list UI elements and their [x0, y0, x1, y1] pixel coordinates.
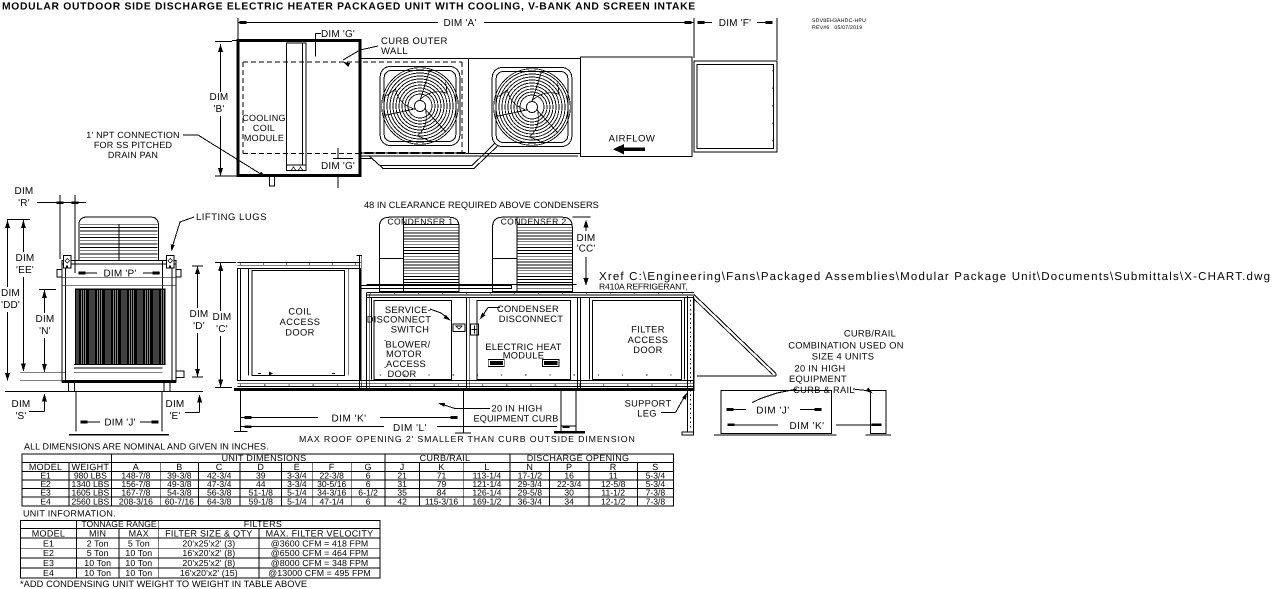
svg-text:2 Ton: 2 Ton: [87, 538, 109, 548]
svg-text:MODULE: MODULE: [503, 350, 545, 360]
svg-text:DIM 'L': DIM 'L': [393, 423, 427, 434]
svg-text:MODULE: MODULE: [244, 133, 284, 143]
svg-text:CONDENSER 2: CONDENSER 2: [501, 216, 567, 226]
svg-text:64-3/8: 64-3/8: [207, 496, 232, 506]
svg-text:EQUIPMENT: EQUIPMENT: [789, 374, 847, 384]
svg-text:CONDENSER 1: CONDENSER 1: [387, 216, 453, 226]
svg-text:MODULAR OUTDOOR SIDE DISCHARGE: MODULAR OUTDOOR SIDE DISCHARGE ELECTRIC …: [2, 2, 696, 13]
svg-text:DIM: DIM: [210, 92, 229, 103]
svg-text:MIN: MIN: [89, 529, 106, 539]
svg-text:BLOWER/: BLOWER/: [386, 339, 431, 349]
svg-text:DIM: DIM: [16, 253, 35, 264]
svg-text:REV#6 05/07/2019: REV#6 05/07/2019: [812, 25, 862, 31]
svg-text:5-1/4: 5-1/4: [287, 496, 307, 506]
svg-text:MAX ROOF OPENING 2' SMALLER TH: MAX ROOF OPENING 2' SMALLER THAN CURB OU…: [299, 434, 636, 444]
svg-text:R410A REFRIGERANT,: R410A REFRIGERANT,: [599, 282, 688, 292]
svg-text:DOOR: DOOR: [633, 345, 663, 355]
svg-text:DIM: DIM: [36, 314, 55, 325]
svg-text:ACCESS: ACCESS: [628, 335, 669, 345]
svg-text:DIM 'J': DIM 'J': [104, 418, 135, 429]
svg-text:DOOR: DOOR: [285, 328, 315, 338]
svg-text:20 IN HIGH: 20 IN HIGH: [794, 363, 845, 373]
svg-text:DIM: DIM: [15, 186, 34, 197]
svg-text:'CC': 'CC': [576, 244, 595, 255]
svg-text:DIM 'G': DIM 'G': [321, 161, 355, 172]
svg-text:10 Ton: 10 Ton: [84, 558, 111, 568]
svg-text:DIM 'P': DIM 'P': [104, 269, 137, 280]
svg-text:UNIT INFORMATION.: UNIT INFORMATION.: [23, 508, 116, 518]
svg-text:CURB/RAIL: CURB/RAIL: [420, 453, 471, 463]
svg-text:DIM: DIM: [190, 309, 209, 320]
svg-text:36-3/4: 36-3/4: [518, 496, 543, 506]
svg-text:DIM: DIM: [213, 312, 232, 323]
svg-text:10 Ton: 10 Ton: [125, 548, 152, 558]
svg-text:20 IN HIGH: 20 IN HIGH: [491, 404, 542, 414]
svg-text:@8000 CFM = 348 FPM: @8000 CFM = 348 FPM: [271, 558, 369, 568]
svg-text:42: 42: [397, 496, 407, 506]
svg-text:E4: E4: [43, 568, 54, 578]
svg-text:60-7/16: 60-7/16: [165, 496, 194, 506]
svg-text:CURB & RAIL: CURB & RAIL: [793, 385, 855, 395]
svg-text:20'x25'x2' (3): 20'x25'x2' (3): [182, 538, 235, 548]
svg-text:59-1/8: 59-1/8: [249, 496, 274, 506]
svg-text:10 Ton: 10 Ton: [125, 558, 152, 568]
svg-text:DIM: DIM: [577, 233, 596, 244]
svg-text:DRAIN PAN: DRAIN PAN: [108, 150, 158, 160]
svg-text:DOOR: DOOR: [387, 369, 416, 379]
svg-text:FILTER SIZE & QTY: FILTER SIZE & QTY: [165, 529, 252, 539]
svg-text:10 Ton: 10 Ton: [125, 568, 152, 578]
svg-text:115-3/16: 115-3/16: [425, 496, 459, 506]
svg-text:*ADD CONDENSING UNIT WEIGHT TO: *ADD CONDENSING UNIT WEIGHT TO WEIGHT IN…: [20, 579, 307, 589]
svg-text:5 Ton: 5 Ton: [87, 548, 109, 558]
svg-text:6: 6: [366, 496, 371, 506]
svg-text:COIL: COIL: [253, 123, 275, 133]
svg-text:16'x20'x2' (15): 16'x20'x2' (15): [180, 568, 238, 578]
svg-text:E4: E4: [40, 496, 51, 506]
svg-text:SWITCH: SWITCH: [391, 325, 429, 335]
svg-text:'C': 'C': [216, 324, 228, 335]
svg-text:COOLING: COOLING: [242, 113, 286, 123]
svg-text:@3600 CFM = 418 FPM: @3600 CFM = 418 FPM: [271, 538, 369, 548]
svg-text:'E': 'E': [169, 411, 180, 422]
svg-text:CONDENSER: CONDENSER: [497, 304, 559, 314]
svg-text:208-3/16: 208-3/16: [119, 496, 153, 506]
svg-text:LEG: LEG: [637, 409, 657, 419]
svg-text:DISCONNECT: DISCONNECT: [367, 315, 431, 325]
svg-text:COMBINATION USED ON: COMBINATION USED ON: [788, 340, 904, 350]
svg-text:'EE': 'EE': [16, 265, 34, 276]
svg-text:'D': 'D': [193, 321, 205, 332]
svg-text:E3: E3: [43, 558, 54, 568]
svg-text:SUPPORT: SUPPORT: [625, 399, 672, 409]
svg-text:16'x20'x2' (8): 16'x20'x2' (8): [182, 548, 235, 558]
svg-text:DIM: DIM: [12, 399, 31, 410]
svg-text:DIM 'K': DIM 'K': [789, 421, 824, 432]
svg-text:DIM: DIM: [166, 399, 185, 410]
svg-text:'DD': 'DD': [1, 300, 20, 311]
svg-text:@6500 CFM = 464 FPM: @6500 CFM = 464 FPM: [271, 548, 369, 558]
svg-text:DISCONNECT: DISCONNECT: [499, 314, 563, 324]
svg-text:MAX. FILTER VELOCITY: MAX. FILTER VELOCITY: [266, 529, 374, 539]
svg-text:DIM 'J': DIM 'J': [756, 406, 789, 417]
svg-text:E2: E2: [43, 548, 54, 558]
svg-text:WALL: WALL: [381, 46, 408, 57]
svg-text:1' NPT CONNECTION: 1' NPT CONNECTION: [86, 130, 179, 140]
svg-text:34: 34: [564, 496, 574, 506]
svg-text:MODEL: MODEL: [32, 529, 66, 539]
svg-text:'N': 'N': [39, 326, 51, 337]
svg-text:MOTOR: MOTOR: [386, 349, 422, 359]
svg-text:MAX: MAX: [129, 529, 149, 539]
svg-text:DIM 'K': DIM 'K': [331, 414, 366, 425]
svg-text:48 IN CLEARANCE REQUIRED ABOVE: 48 IN CLEARANCE REQUIRED ABOVE CONDENSER…: [364, 200, 599, 210]
svg-text:LIFTING LUGS: LIFTING LUGS: [196, 212, 267, 223]
svg-text:'S': 'S': [15, 411, 26, 422]
svg-text:7-3/8: 7-3/8: [646, 496, 666, 506]
svg-text:@13000 CFM = 495 FPM: @13000 CFM = 495 FPM: [268, 568, 371, 578]
svg-text:CURB/RAIL: CURB/RAIL: [844, 329, 896, 339]
svg-text:Xref C:\Engineering\Fans\Packa: Xref C:\Engineering\Fans\Packaged Assemb…: [599, 271, 1271, 283]
svg-text:SDV8EH3AHDC-HPU: SDV8EH3AHDC-HPU: [812, 18, 866, 24]
svg-text:DIM 'A': DIM 'A': [444, 18, 477, 29]
svg-text:SIZE 4 UNITS: SIZE 4 UNITS: [812, 352, 875, 362]
svg-text:47-1/4: 47-1/4: [320, 496, 345, 506]
svg-text:'R': 'R': [18, 198, 30, 209]
svg-text:EQUIPMENT CURB: EQUIPMENT CURB: [474, 414, 559, 424]
svg-text:12-1/2: 12-1/2: [601, 496, 626, 506]
svg-text:E1: E1: [43, 538, 54, 548]
svg-text:DIM 'G': DIM 'G': [321, 29, 355, 40]
svg-text:SERVICE-: SERVICE-: [385, 305, 431, 315]
svg-text:COIL: COIL: [288, 307, 311, 317]
svg-text:AIRFLOW: AIRFLOW: [609, 134, 656, 145]
svg-text:DIM: DIM: [1, 288, 20, 299]
svg-text:'B': 'B': [213, 104, 224, 115]
svg-text:5 Ton: 5 Ton: [128, 538, 150, 548]
svg-text:169-1/2: 169-1/2: [472, 496, 501, 506]
svg-text:FOR SS PITCHED: FOR SS PITCHED: [94, 140, 173, 150]
svg-text:10 Ton: 10 Ton: [84, 568, 111, 578]
svg-text:ACCESS: ACCESS: [386, 359, 426, 369]
svg-text:ALL DIMENSIONS ARE NOMINAL AND: ALL DIMENSIONS ARE NOMINAL AND GIVEN IN …: [24, 442, 269, 452]
svg-text:2560 LBS: 2560 LBS: [71, 496, 109, 506]
svg-text:20'x25'x2' (8): 20'x25'x2' (8): [182, 558, 235, 568]
svg-text:DIM 'F': DIM 'F': [719, 18, 751, 29]
svg-text:ACCESS: ACCESS: [280, 317, 321, 327]
svg-text:FILTER: FILTER: [631, 325, 665, 335]
